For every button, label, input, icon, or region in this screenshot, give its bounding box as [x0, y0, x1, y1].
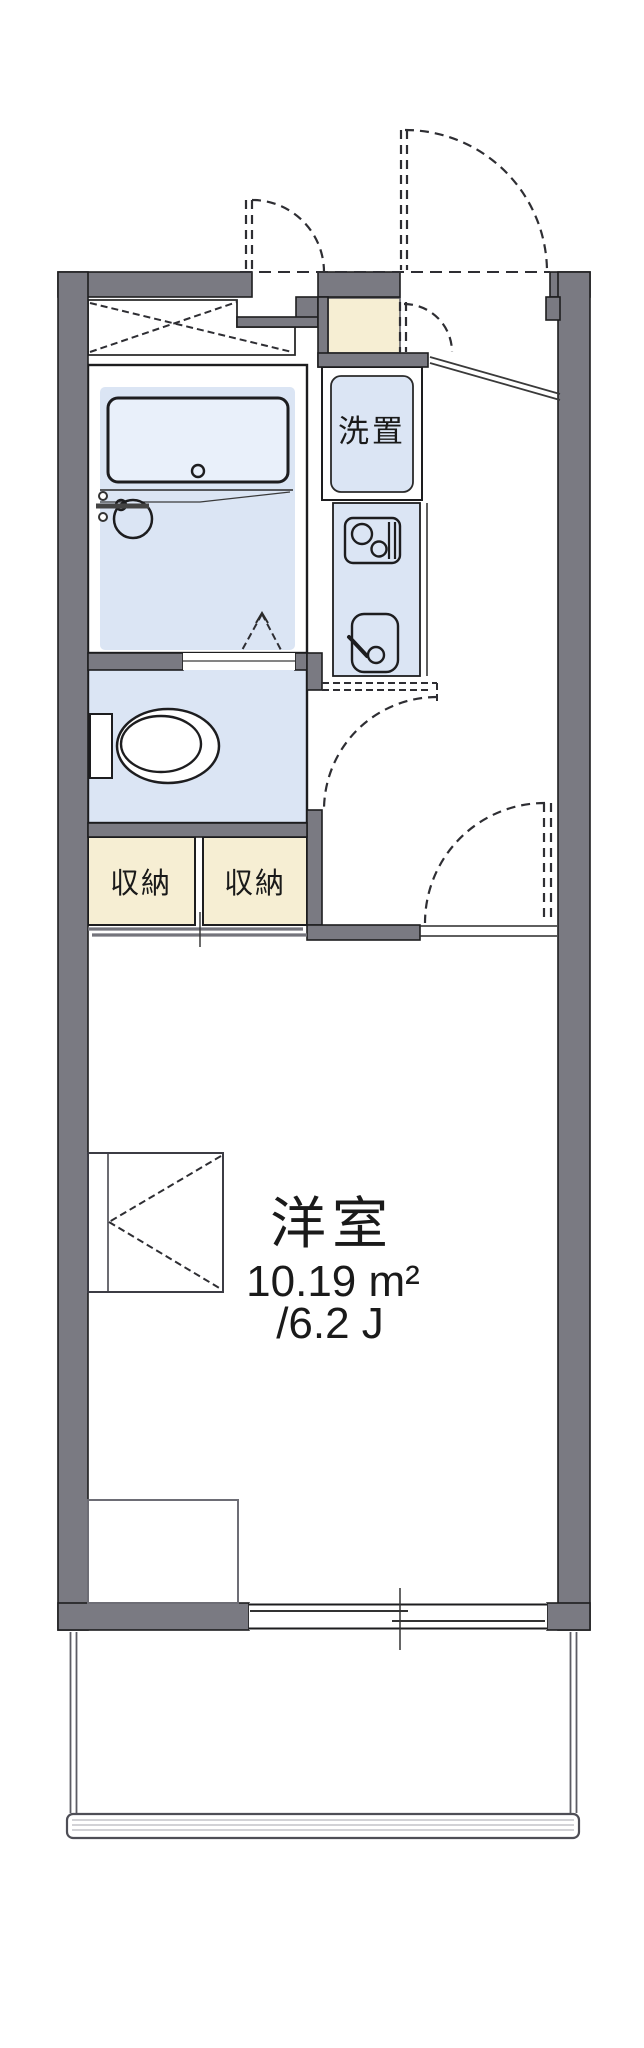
faucet-knob	[99, 513, 107, 521]
toilet-right-wall-upper	[307, 653, 322, 690]
bathtub	[108, 398, 288, 482]
main-room-tatami: /6.2 J	[276, 1299, 384, 1348]
main-room-name: 洋室	[270, 1192, 394, 1255]
service-door-swing	[252, 200, 324, 272]
floor-plan: 洗置 収納 収納 洋室 10.19 m² /6.2 J	[0, 0, 644, 2048]
lavatory-door-swing	[324, 697, 437, 810]
faucet-knob	[99, 492, 107, 500]
right-wall	[558, 272, 590, 1630]
bottom-wall-left	[58, 1603, 249, 1630]
top-wall-mid	[318, 272, 400, 297]
entry-door-swing	[405, 130, 547, 272]
bottom-wall-right	[547, 1603, 590, 1630]
entrance-step-edge	[430, 363, 560, 400]
entrance-tataki	[328, 298, 400, 353]
toilet-right-wall-lower	[307, 810, 322, 925]
entrance-step-edge	[430, 357, 560, 394]
main-room-door-swing	[425, 803, 545, 923]
floor-alcove	[88, 1500, 238, 1603]
washer-space-label: 洗置	[338, 414, 406, 449]
storage-right-label: 収納	[224, 867, 286, 900]
bath-toilet-wall-left	[88, 653, 183, 670]
left-wall	[58, 272, 88, 1630]
toilet-tank	[90, 714, 112, 778]
balcony-railing	[67, 1814, 579, 1838]
main-room-top-wall	[307, 925, 420, 940]
floor-plan-drawing: 洗置 収納 収納 洋室 10.19 m² /6.2 J	[0, 0, 644, 2048]
main-room-details	[88, 1153, 238, 1603]
entrance-inner-swing	[404, 304, 452, 352]
kitchen-top-wall	[318, 353, 428, 367]
sliding-window-band	[249, 1603, 547, 1630]
toilet-bottom-wall	[88, 823, 307, 837]
entry-door-sill	[237, 317, 318, 327]
bath-toilet-wall-right	[295, 653, 307, 670]
storage-left-label: 収納	[110, 867, 172, 900]
entry-corner-block	[546, 297, 560, 320]
